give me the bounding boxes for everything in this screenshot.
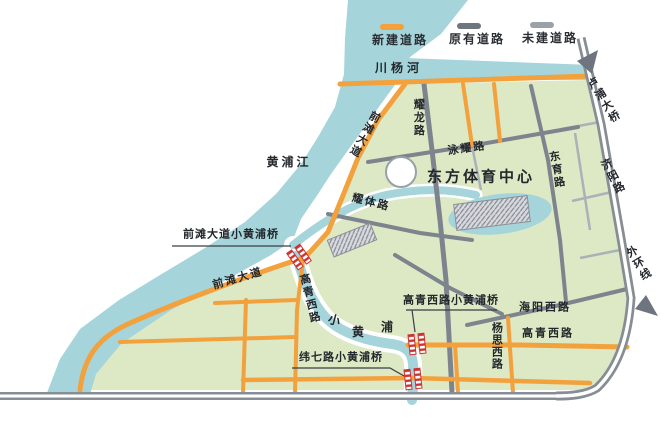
- gaoqing-ew-road-label: 高青西路: [522, 328, 574, 341]
- yangsi-road-label: 杨思西路: [490, 322, 503, 370]
- weiqi-bridge-label: 纬七路小黄浦桥: [299, 352, 383, 365]
- huangpu-river-label: 黄浦江: [266, 156, 311, 170]
- legend-label-existing-road: 原有道路: [449, 33, 505, 45]
- haiyang-road-label: 海阳西路: [519, 302, 571, 315]
- legend-swatch-new-road: [380, 24, 404, 30]
- outer-ring-arrow-icon: [635, 295, 658, 316]
- chuanyang-river-label: 川杨河: [375, 62, 423, 76]
- legend-label-planned-road: 未建道路: [522, 32, 578, 44]
- legend-item-planned-road: 未建道路: [522, 22, 578, 44]
- gaoqing-bridge-label: 高青西路小黄浦桥: [403, 295, 499, 308]
- legend-swatch-planned-road: [530, 22, 554, 28]
- xiao-huangpu-char-2: 黄: [352, 326, 364, 340]
- gaoqing-ew-line: [408, 345, 627, 347]
- legend-swatch-existing-road: [457, 23, 481, 29]
- legend-item-new-road: 新建道路: [372, 24, 428, 46]
- yaolong-road-label: 耀龙路: [412, 99, 425, 138]
- legend-label-new-road: 新建道路: [372, 34, 428, 46]
- legend-item-existing-road: 原有道路: [449, 23, 505, 45]
- sports-center-label: 东方体育中心: [427, 168, 535, 185]
- qiantan-bridge-label: 前滩大道小黄浦桥: [183, 229, 279, 242]
- road-map-figure: 新建道路 原有道路 未建道路 川杨河 黄浦江 前滩大道 耀龙路 泳耀路 东育路 …: [0, 0, 661, 423]
- xiao-huangpu-char-3: 浦: [381, 321, 393, 335]
- stadium-arena: [386, 157, 416, 187]
